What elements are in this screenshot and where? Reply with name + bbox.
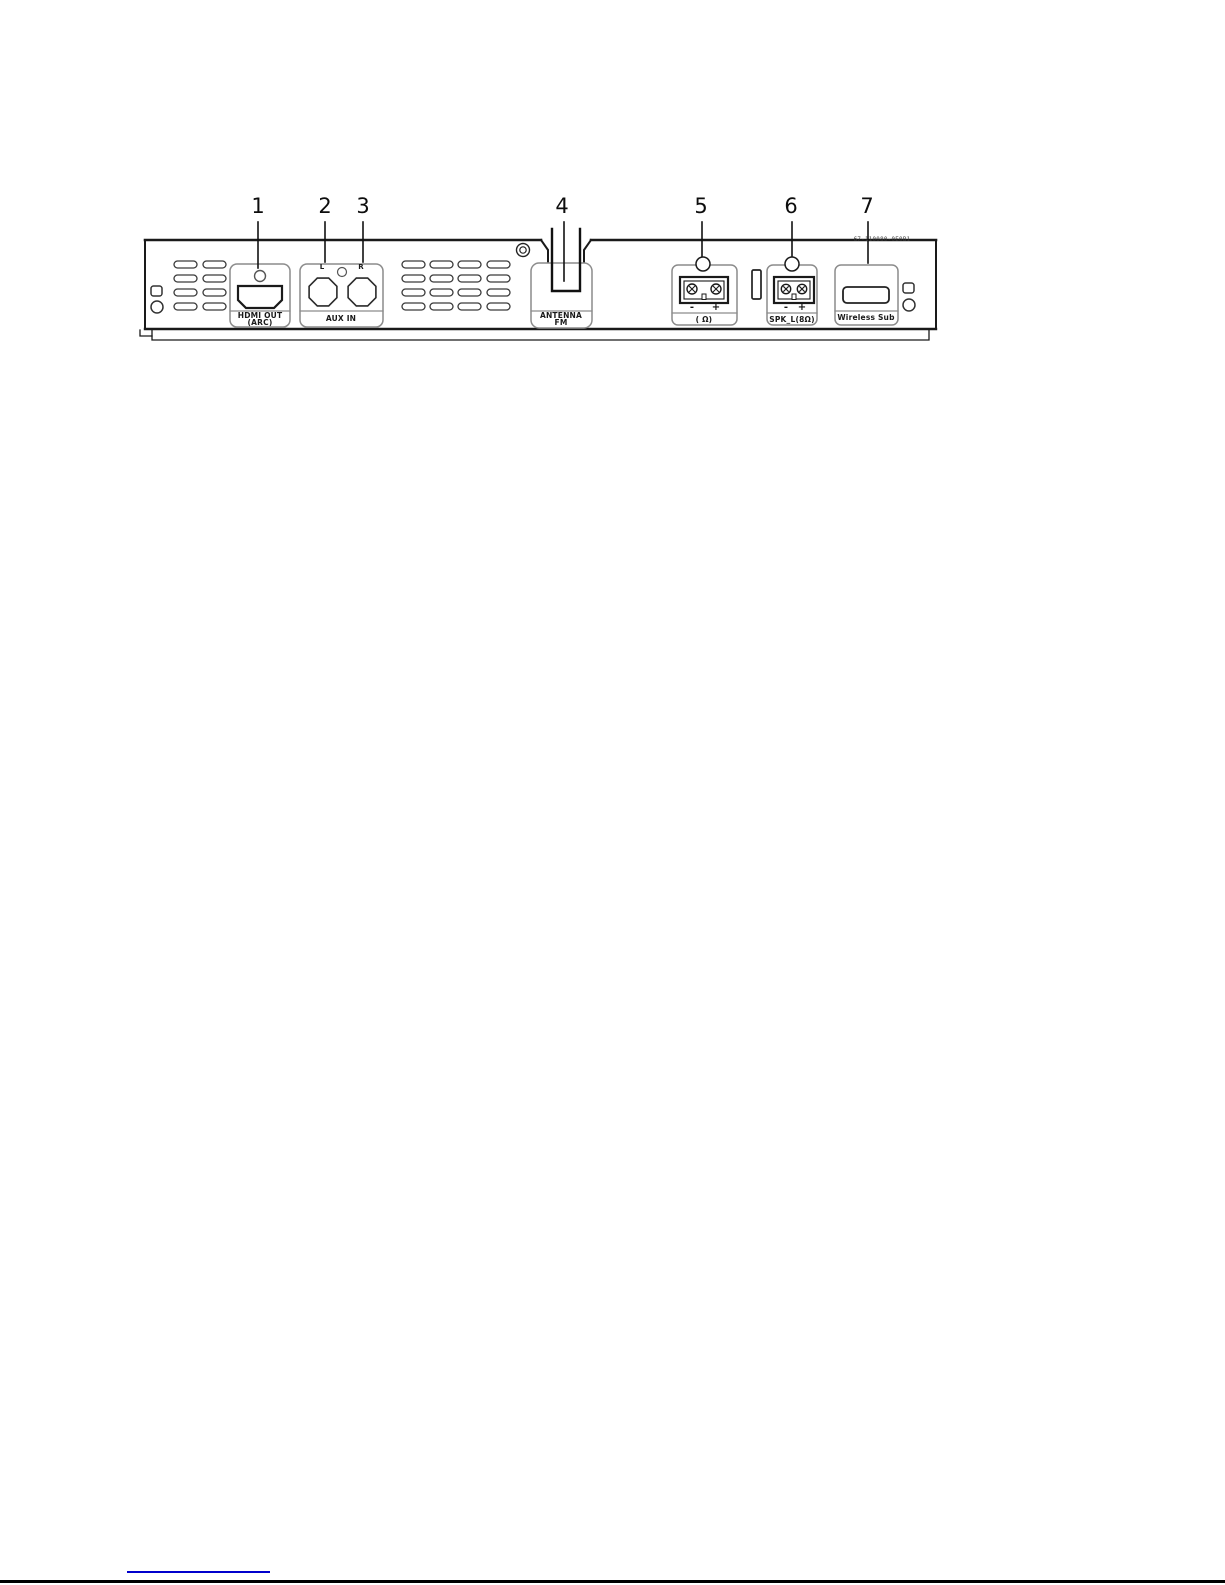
aux-jack-right-label: R [358, 264, 363, 271]
spk-l-screw-hole-icon [785, 257, 799, 271]
spk-r-minus: - [690, 303, 694, 313]
callout-number-3: 3 [356, 196, 369, 217]
callout-number-4: 4 [555, 196, 568, 217]
screw-icon [517, 244, 530, 257]
spk-l-plus: + [798, 303, 806, 313]
callout-number-7: 7 [860, 196, 873, 217]
manual-page: 1 2 3 4 5 6 7 67-110080-0E0B1 HDMI OUT (… [0, 0, 1225, 1585]
rear-panel-diagram [0, 0, 1225, 420]
callout-number-1: 1 [251, 196, 264, 217]
wireless-sub-label: Wireless Sub [837, 314, 894, 322]
part-number: 67-110080-0E0B1 [854, 238, 911, 244]
spk-l-label: SPK_L(8Ω) [769, 316, 815, 324]
slot-divider [752, 270, 761, 299]
keyhole-mount-icon-right [903, 283, 915, 311]
antenna-label-line2: FM [555, 319, 568, 327]
vent-slots-left [174, 261, 226, 310]
callout-number-6: 6 [784, 196, 797, 217]
spk-r-label: ( Ω) [696, 316, 713, 324]
spk-r-screw-hole-icon [696, 257, 710, 271]
page-bottom-border [0, 1580, 1225, 1583]
vent-slots-middle [402, 261, 510, 310]
hdmi-label-line2: (ARC) [248, 319, 273, 327]
footer-link-underline[interactable] [127, 1571, 270, 1573]
spk-l-minus: - [784, 303, 788, 313]
keyhole-mount-icon-left [151, 286, 163, 313]
spk-r-plus: + [712, 303, 720, 313]
callout-number-2: 2 [318, 196, 331, 217]
callout-number-5: 5 [694, 196, 707, 217]
aux-label: AUX IN [326, 315, 356, 323]
aux-jack-left-label: L [320, 264, 324, 271]
